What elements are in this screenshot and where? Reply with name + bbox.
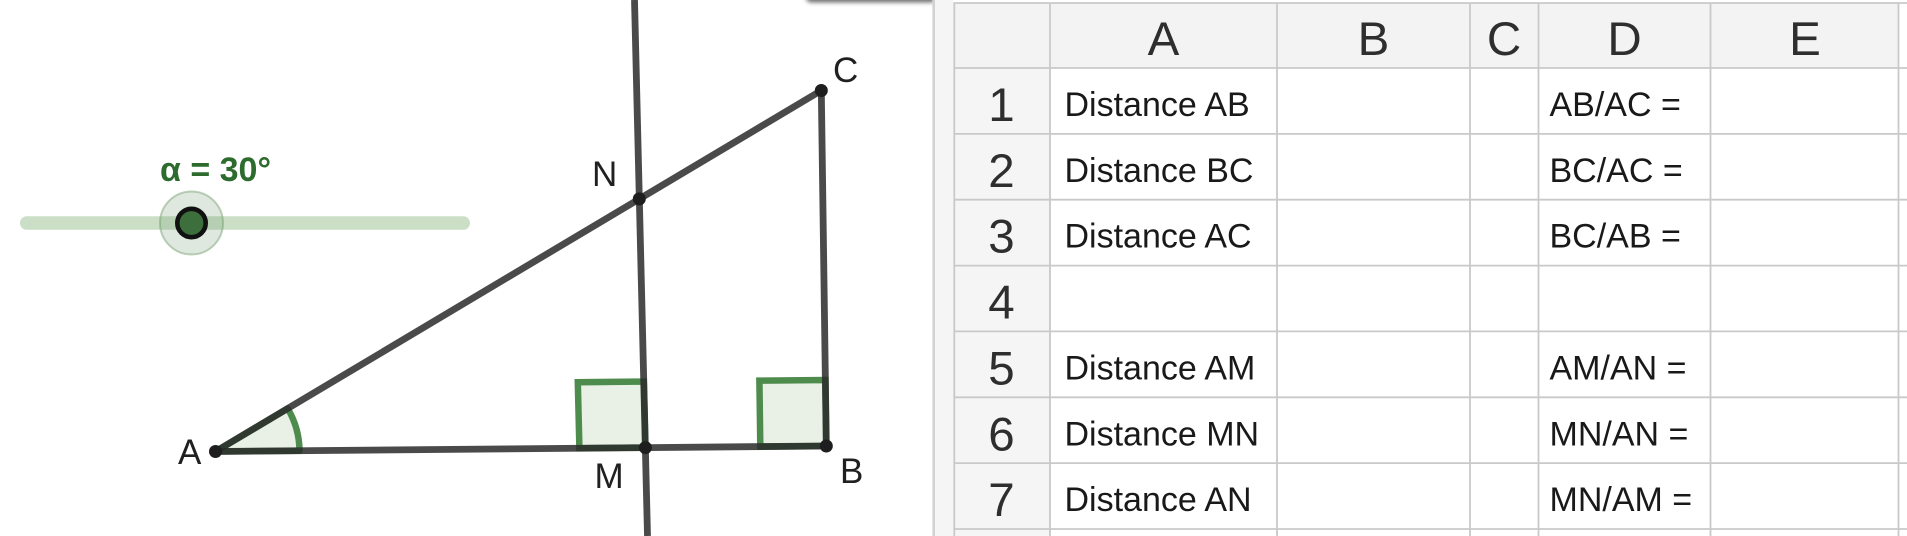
svg-text:AM/AN =: AM/AN =	[1550, 349, 1687, 387]
svg-text:7: 7	[988, 474, 1014, 527]
svg-text:3: 3	[988, 211, 1014, 264]
svg-text:BC/AC =: BC/AC =	[1550, 152, 1683, 190]
svg-text:MN/AM =: MN/AM =	[1550, 481, 1693, 519]
svg-text:B: B	[1358, 13, 1390, 66]
svg-text:Distance AB: Distance AB	[1065, 86, 1250, 124]
svg-text:A: A	[1148, 13, 1180, 66]
svg-text:6: 6	[988, 408, 1014, 461]
svg-text:MN/AN =: MN/AN =	[1550, 415, 1689, 453]
svg-text:A: A	[178, 433, 202, 472]
svg-text:5: 5	[988, 342, 1014, 395]
svg-text:Distance MN: Distance MN	[1065, 415, 1260, 453]
svg-text:Distance BC: Distance BC	[1065, 152, 1254, 190]
svg-text:α = 30°: α = 30°	[160, 151, 271, 189]
svg-text:E: E	[1789, 13, 1821, 66]
svg-text:M: M	[595, 457, 624, 496]
svg-text:C: C	[1487, 13, 1521, 66]
svg-text:2: 2	[988, 145, 1014, 198]
svg-text:B: B	[840, 452, 863, 491]
svg-text:D: D	[1607, 13, 1641, 66]
svg-text:1: 1	[988, 79, 1014, 132]
svg-text:Distance AN: Distance AN	[1065, 481, 1252, 519]
svg-text:4: 4	[988, 277, 1014, 330]
svg-text:N: N	[592, 155, 617, 194]
svg-text:Distance AC: Distance AC	[1065, 218, 1252, 256]
svg-text:AB/AC =: AB/AC =	[1550, 86, 1681, 124]
svg-text:Distance AM: Distance AM	[1065, 349, 1256, 387]
svg-text:C: C	[833, 51, 858, 90]
svg-text:BC/AB =: BC/AB =	[1550, 218, 1681, 256]
